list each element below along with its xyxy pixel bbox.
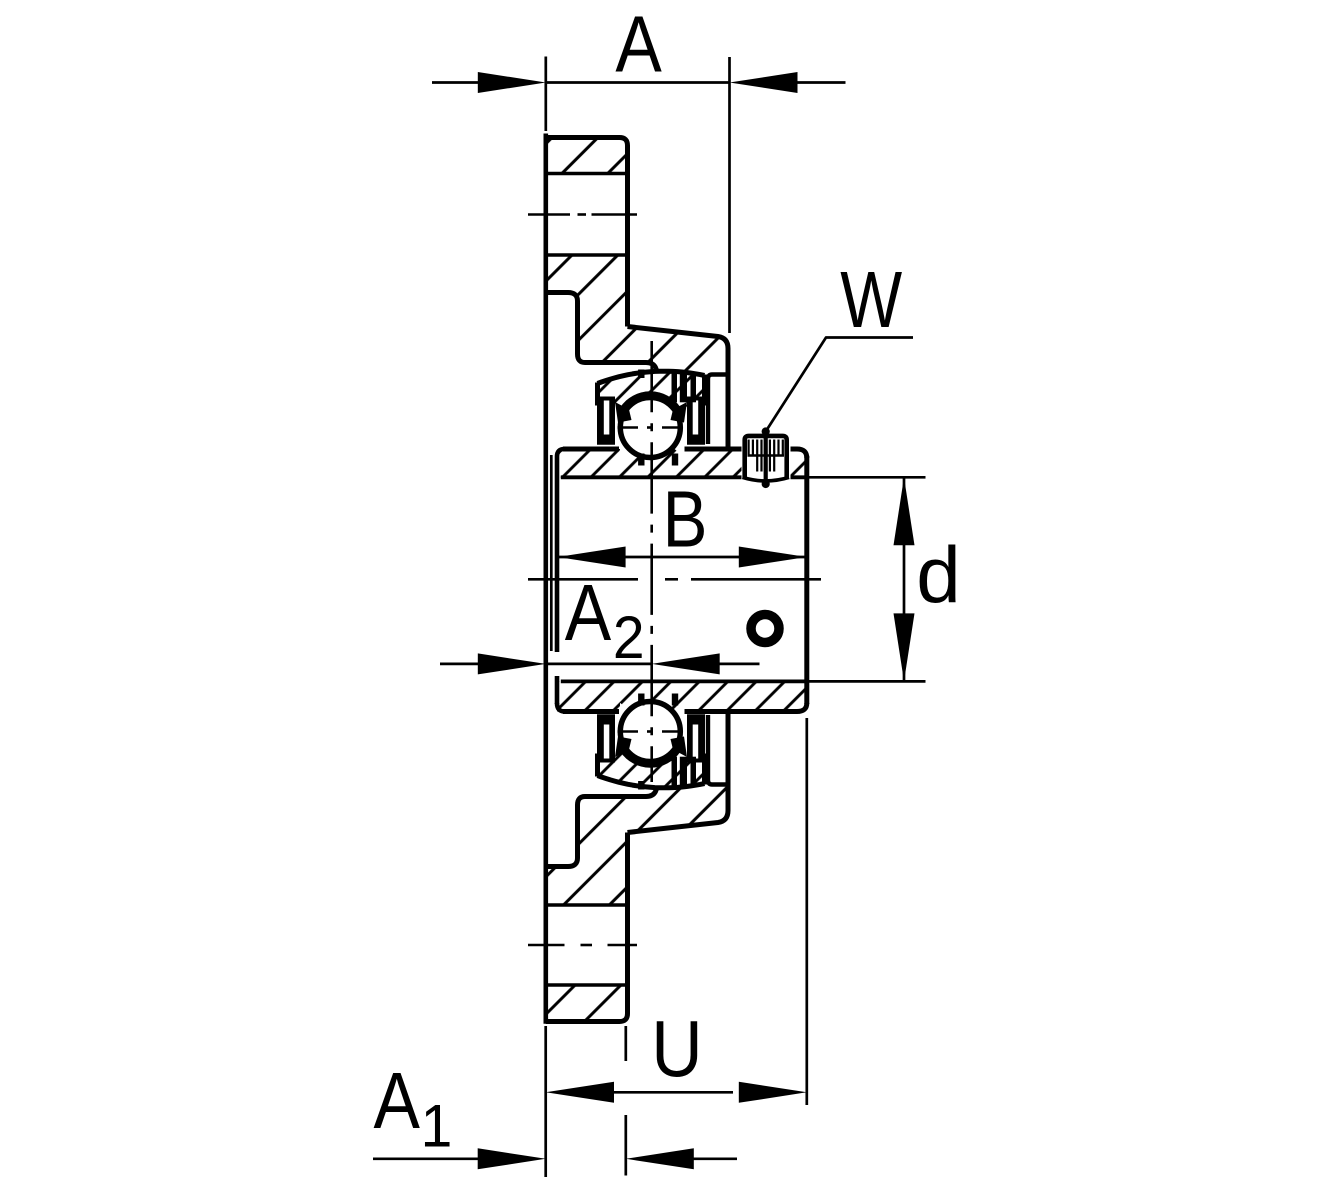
svg-text:1: 1 — [421, 1093, 453, 1160]
svg-text:A: A — [373, 1055, 419, 1145]
svg-text:A: A — [565, 567, 611, 657]
svg-text:A: A — [615, 0, 661, 89]
svg-text:B: B — [663, 474, 708, 564]
svg-text:W: W — [840, 255, 902, 345]
svg-text:d: d — [916, 531, 961, 620]
svg-text:2: 2 — [613, 605, 645, 672]
svg-text:U: U — [651, 1004, 702, 1094]
